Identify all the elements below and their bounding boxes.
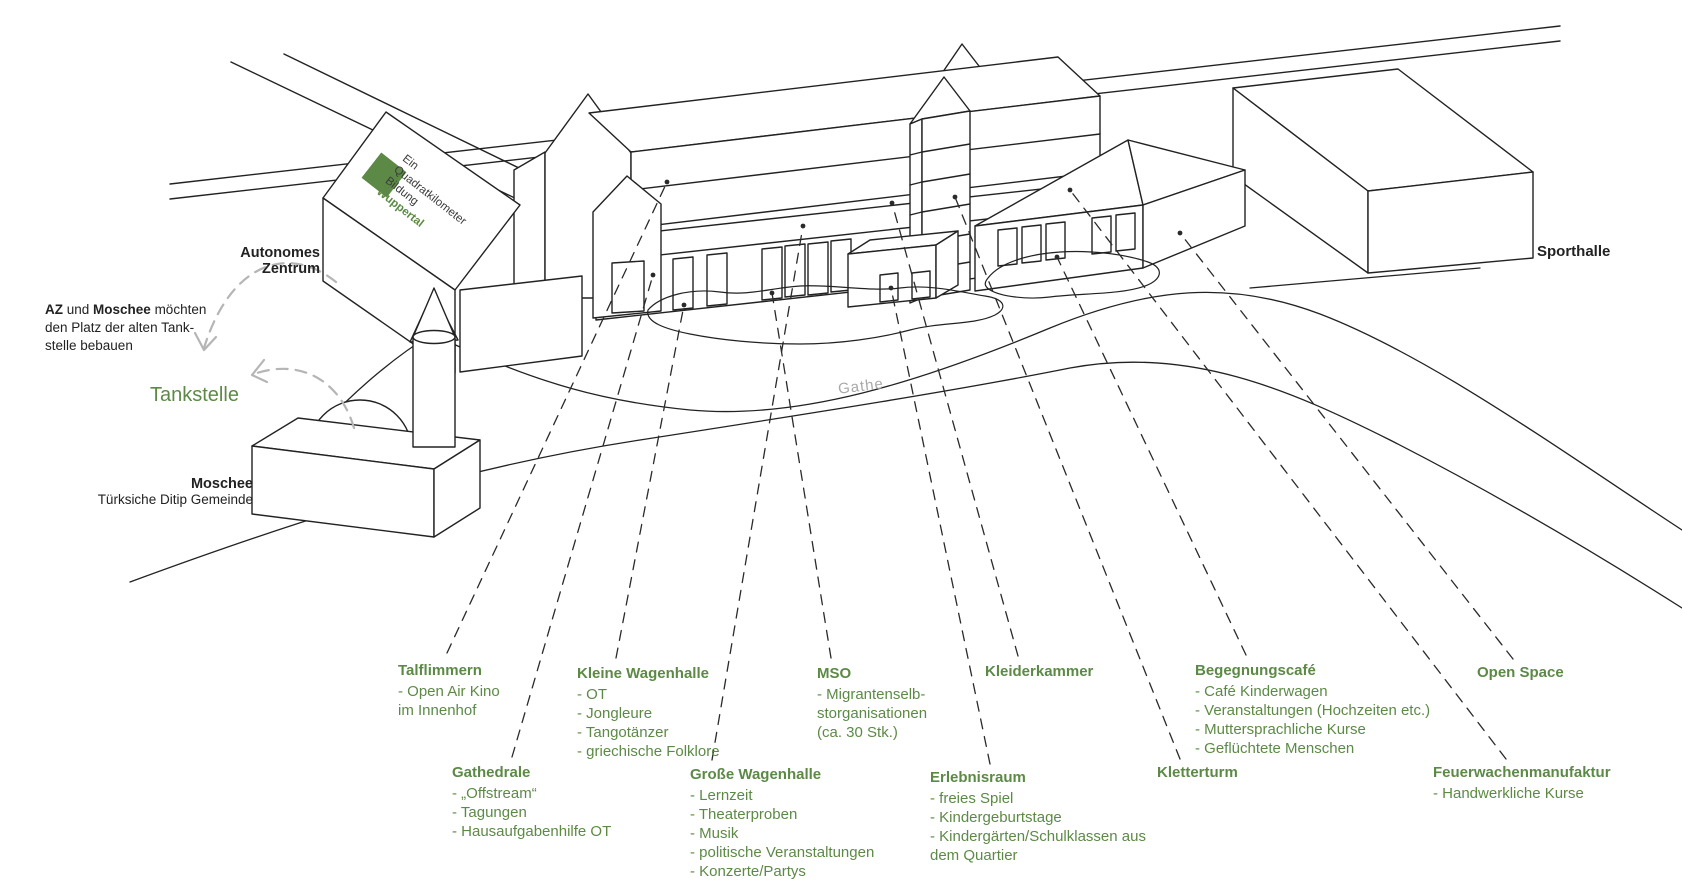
annotation-title: Kleiderkammer (985, 662, 1093, 681)
note-rest: möchten (151, 302, 207, 317)
note-line3: stelle bebauen (45, 337, 245, 355)
annotation-title: Talflimmern (398, 661, 500, 680)
annotation-item: - Hausaufgabenhilfe OT (452, 822, 611, 841)
annotation-title: Feuerwachenmanufaktur (1433, 763, 1611, 782)
annotation-item: - Muttersprachliche Kurse (1195, 720, 1430, 739)
annotation-item: - Veranstaltungen (Hochzeiten etc.) (1195, 701, 1430, 720)
annotation-item: - Musik (690, 824, 874, 843)
annotation-item: - „Offstream“ (452, 784, 611, 803)
annotation-item: - Theaterproben (690, 805, 874, 824)
annotation-kleine-wagenhalle: Kleine Wagenhalle - OT - Jongleure - Tan… (577, 664, 720, 761)
annotation-mso: MSO - Migrantenselb- storganisationen (c… (817, 664, 927, 742)
mosque (252, 288, 480, 537)
annotation-open-space: Open Space (1477, 663, 1564, 684)
annotation-item: - Lernzeit (690, 786, 874, 805)
annotation-item: - freies Spiel (930, 789, 1146, 808)
annotation-item: - Tangotänzer (577, 723, 720, 742)
annotation-item: - Geflüchtete Menschen (1195, 739, 1430, 758)
annotation-item: - Kindergärten/Schulklassen aus (930, 827, 1146, 846)
note-az-moschee: AZ und Moschee möchten den Platz der alt… (45, 301, 245, 355)
annotation-title: Erlebnisraum (930, 768, 1146, 787)
line-drawing (0, 0, 1682, 896)
annotation-title: Open Space (1477, 663, 1564, 682)
annotation-item: - Migrantenselb- (817, 685, 927, 704)
annotation-grosse-wagenhalle: Große Wagenhalle - Lernzeit - Theaterpro… (690, 765, 874, 881)
note-line1: AZ und Moschee möchten (45, 301, 245, 319)
annotation-kleiderkammer: Kleiderkammer (985, 662, 1093, 683)
az-line2: Zentrum (220, 261, 320, 277)
label-autonomes-zentrum: Autonomes Zentrum (220, 245, 320, 277)
annotation-item: storganisationen (817, 704, 927, 723)
annotation-begegnungscafe: Begegnungscafé - Café Kinderwagen - Vera… (1195, 661, 1430, 758)
annotation-gathedrale: Gathedrale - „Offstream“ - Tagungen - Ha… (452, 763, 611, 841)
annotation-title: MSO (817, 664, 927, 683)
annotation-item: - Open Air Kino (398, 682, 500, 701)
annotation-talflimmern: Talflimmern - Open Air Kino im Innenhof (398, 661, 500, 720)
annotation-item: - Kindergeburtstage (930, 808, 1146, 827)
annotation-title: Kleine Wagenhalle (577, 664, 720, 683)
annotation-item: - Handwerkliche Kurse (1433, 784, 1611, 803)
annotation-item: - politische Veranstaltungen (690, 843, 874, 862)
annotation-item: - OT (577, 685, 720, 704)
annotation-item: - Tagungen (452, 803, 611, 822)
annotation-item: im Innenhof (398, 701, 500, 720)
az-line1: Autonomes (220, 245, 320, 261)
annotation-title: Begegnungscafé (1195, 661, 1430, 680)
note-moschee: Moschee (93, 302, 151, 317)
note-mid: und (63, 302, 93, 317)
label-moschee: Moschee Türksiche Ditip Gemeinde (53, 476, 253, 508)
annotation-item: - Café Kinderwagen (1195, 682, 1430, 701)
annotation-item: - Konzerte/Partys (690, 862, 874, 881)
annotation-item: (ca. 30 Stk.) (817, 723, 927, 742)
annotation-title: Große Wagenhalle (690, 765, 874, 784)
annotation-title: Gathedrale (452, 763, 611, 782)
note-line2: den Platz der alten Tank- (45, 319, 245, 337)
sporthalle-building (1233, 69, 1533, 273)
label-sporthalle: Sporthalle (1537, 243, 1610, 260)
annotation-erlebnisraum: Erlebnisraum - freies Spiel - Kindergebu… (930, 768, 1146, 865)
annotation-item: dem Quartier (930, 846, 1146, 865)
annotation-item: - Jongleure (577, 704, 720, 723)
label-tankstelle: Tankstelle (150, 384, 239, 407)
annotation-kletterturm: Kletterturm (1157, 763, 1238, 784)
note-az: AZ (45, 302, 63, 317)
moschee-subtitle: Türksiche Ditip Gemeinde (53, 492, 253, 508)
site-diagram: Ein Quadratkilometer Bildung Wuppertal A… (0, 0, 1682, 896)
annotation-feuerwachenmanufaktur: Feuerwachenmanufaktur - Handwerkliche Ku… (1433, 763, 1611, 803)
annotation-item: - griechische Folklore (577, 742, 720, 761)
annotation-title: Kletterturm (1157, 763, 1238, 782)
moschee-title: Moschee (53, 476, 253, 492)
